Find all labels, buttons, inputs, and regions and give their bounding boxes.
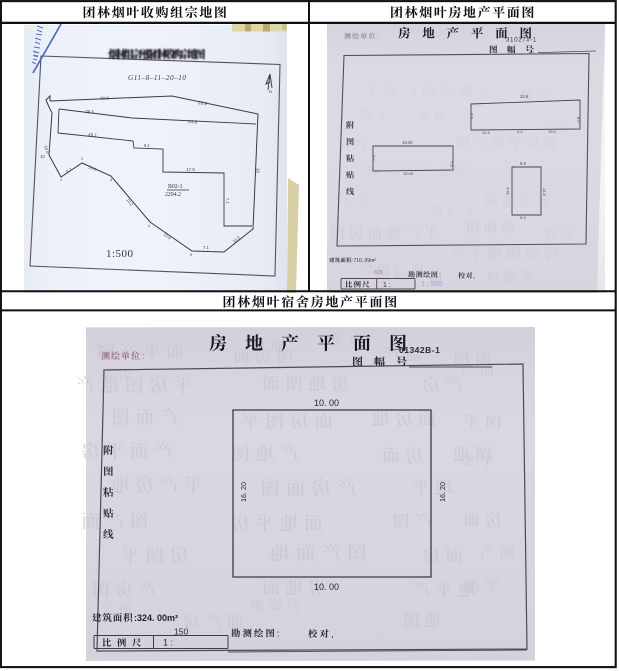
- svg-text::: :: [377, 34, 379, 41]
- svg-text:10. 00: 10. 00: [314, 582, 339, 592]
- svg-text:,: ,: [473, 273, 475, 280]
- svg-text:10: 10: [40, 154, 45, 159]
- svg-text:825: 825: [374, 270, 383, 276]
- svg-text:16.8: 16.8: [505, 186, 510, 195]
- svg-text:14.8: 14.8: [542, 188, 547, 197]
- svg-text::: :: [439, 272, 441, 279]
- svg-text::324. 00m²: :324. 00m²: [134, 613, 178, 623]
- svg-text:4: 4: [148, 224, 150, 228]
- svg-text:2294.2: 2294.2: [165, 192, 181, 198]
- svg-text:8.0: 8.0: [576, 117, 581, 123]
- svg-text:8.0: 8.0: [469, 113, 474, 119]
- svg-text::: :: [142, 351, 145, 361]
- svg-text:49.8: 49.8: [100, 96, 110, 101]
- svg-text:1 : 500: 1 : 500: [421, 281, 443, 288]
- svg-text:19.40: 19.40: [402, 140, 413, 145]
- svg-text:1 :: 1 :: [163, 638, 173, 648]
- svg-text:31027#-1: 31027#-1: [506, 37, 537, 44]
- svg-text:9.2: 9.2: [517, 129, 523, 134]
- svg-text:7.9: 7.9: [449, 161, 454, 167]
- svg-text:1 :: 1 :: [383, 282, 391, 289]
- svg-text:7.1: 7.1: [203, 245, 209, 250]
- svg-text:2: 2: [81, 157, 83, 161]
- svg-text:3: 3: [110, 178, 112, 182]
- svg-text:20.4: 20.4: [482, 130, 491, 135]
- svg-text:,: ,: [331, 629, 334, 639]
- svg-text:16. 20: 16. 20: [438, 482, 447, 502]
- svg-text:24.8: 24.8: [188, 119, 198, 124]
- svg-text:5.9: 5.9: [520, 161, 526, 166]
- svg-text:5.9: 5.9: [520, 215, 526, 220]
- svg-text::710. 09m²: :710. 09m²: [352, 258, 376, 264]
- svg-text:49.1: 49.1: [88, 132, 98, 138]
- svg-text::: :: [403, 357, 406, 369]
- svg-text:B02-1: B02-1: [168, 184, 183, 190]
- svg-text:1: 1: [60, 178, 62, 182]
- svg-text:19.40: 19.40: [403, 171, 414, 176]
- svg-text:7.9: 7.9: [371, 155, 376, 161]
- svg-text:32.6: 32.6: [520, 94, 529, 99]
- svg-text:7.1: 7.1: [225, 198, 231, 205]
- svg-text:N: N: [269, 89, 272, 94]
- svg-text:01342B-1: 01342B-1: [399, 345, 440, 355]
- svg-text:9.1: 9.1: [144, 143, 150, 148]
- svg-text:16: 16: [255, 168, 260, 174]
- svg-text:16. 20: 16. 20: [239, 482, 248, 502]
- svg-text:G11–8–11–20–10: G11–8–11–20–10: [128, 74, 187, 82]
- svg-text:28.5: 28.5: [85, 109, 95, 115]
- svg-text:5: 5: [190, 253, 192, 257]
- svg-text:17.5: 17.5: [186, 167, 195, 172]
- svg-text:1:500: 1:500: [106, 248, 134, 260]
- svg-text:13.0: 13.0: [548, 129, 557, 134]
- svg-text::: :: [532, 45, 534, 55]
- svg-text::: :: [277, 629, 280, 639]
- svg-text:10. 00: 10. 00: [314, 398, 339, 408]
